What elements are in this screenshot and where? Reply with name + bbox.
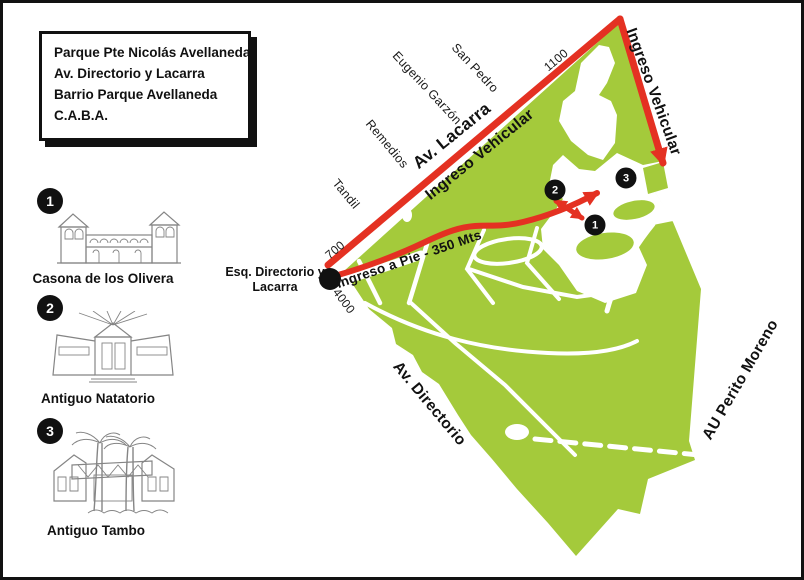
park-white-oval-2 [456, 89, 466, 103]
park-city: C.A.B.A. [54, 106, 238, 127]
legend-badge-3-number: 3 [46, 423, 54, 439]
map-poster: Parque Pte Nicolás Avellaneda Av. Direct… [0, 0, 804, 580]
entrance-label-line2: Lacarra [225, 280, 324, 295]
natatorio-drawing [49, 311, 177, 385]
legend-caption-casona: Casona de los Olivera [23, 271, 183, 286]
park-white-blob-bottom [505, 424, 529, 440]
legend-caption-tambo: Antiguo Tambo [16, 523, 176, 538]
legend-caption-natatorio: Antiguo Natatorio [18, 391, 178, 406]
map-marker-3: 3 [616, 168, 637, 189]
tambo-drawing [48, 431, 180, 519]
map-marker-2: 2 [545, 180, 566, 201]
park-name: Parque Pte Nicolás Avellaneda [54, 43, 238, 64]
park-neighborhood: Barrio Parque Avellaneda [54, 85, 238, 106]
map-marker-2-number: 2 [552, 184, 558, 196]
legend-badge-3: 3 [37, 418, 63, 444]
entrance-label-line1: Esq. Directorio y [225, 265, 324, 280]
park-address: Av. Directorio y Lacarra [54, 64, 238, 85]
map-marker-1: 1 [585, 215, 606, 236]
legend-badge-2: 2 [37, 295, 63, 321]
legend-badge-1: 1 [37, 188, 63, 214]
legend-badge-1-number: 1 [46, 193, 54, 209]
entrance-label: Esq. Directorio y Lacarra [225, 265, 324, 295]
park-white-oval-1 [402, 208, 412, 222]
title-box: Parque Pte Nicolás Avellaneda Av. Direct… [39, 31, 251, 141]
casona-drawing [55, 203, 183, 269]
legend-badge-2-number: 2 [46, 300, 54, 316]
map-marker-1-number: 1 [592, 219, 598, 231]
map-marker-3-number: 3 [623, 172, 629, 184]
